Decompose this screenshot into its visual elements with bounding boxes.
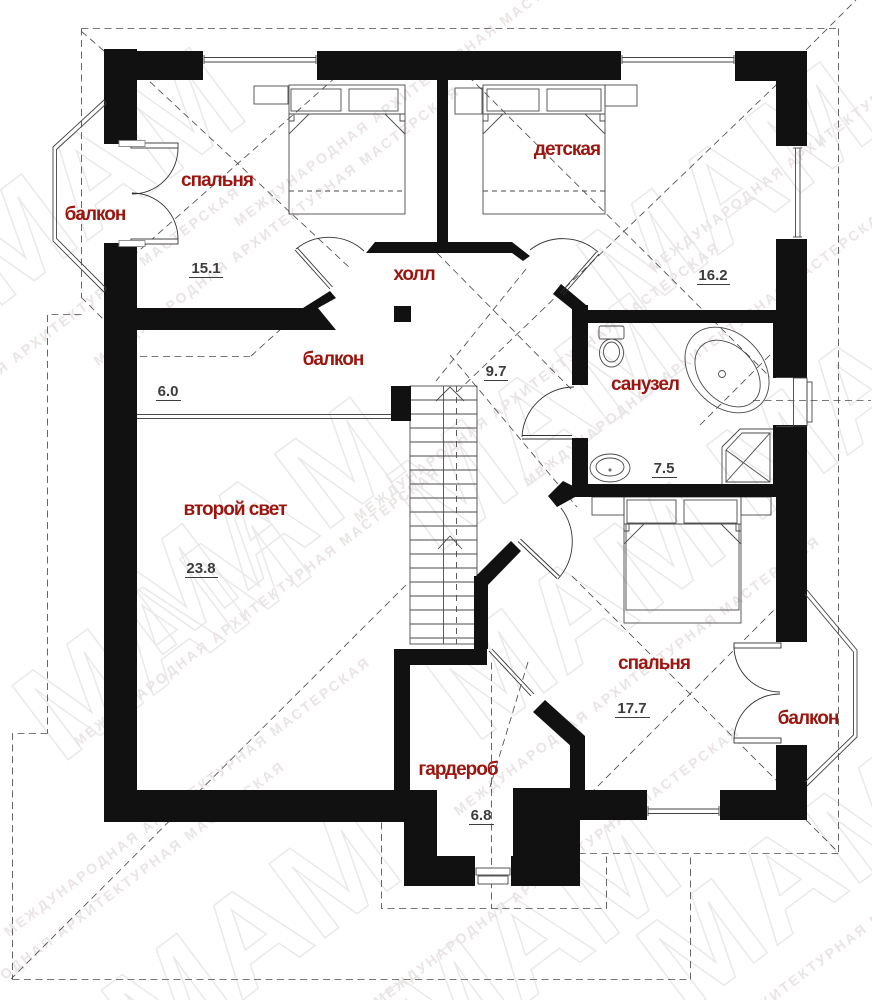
svg-text:23.8: 23.8 xyxy=(186,560,215,577)
svg-text:6.8: 6.8 xyxy=(471,807,492,824)
svg-text:санузел: санузел xyxy=(611,374,679,395)
svg-text:7.5: 7.5 xyxy=(654,460,675,477)
svg-text:холл: холл xyxy=(393,264,434,285)
svg-text:балкон: балкон xyxy=(303,349,364,370)
svg-text:второй свет: второй свет xyxy=(184,499,288,520)
svg-text:9.7: 9.7 xyxy=(486,363,507,380)
svg-text:спальня: спальня xyxy=(618,653,690,674)
svg-text:17.7: 17.7 xyxy=(617,700,646,717)
svg-text:балкон: балкон xyxy=(65,204,126,225)
svg-text:детская: детская xyxy=(534,139,600,160)
svg-text:6.0: 6.0 xyxy=(158,383,179,400)
svg-text:15.1: 15.1 xyxy=(191,260,220,277)
svg-text:16.2: 16.2 xyxy=(698,267,727,284)
svg-text:балкон: балкон xyxy=(778,708,839,729)
svg-text:гардероб: гардероб xyxy=(418,759,497,780)
svg-text:спальня: спальня xyxy=(181,170,253,191)
